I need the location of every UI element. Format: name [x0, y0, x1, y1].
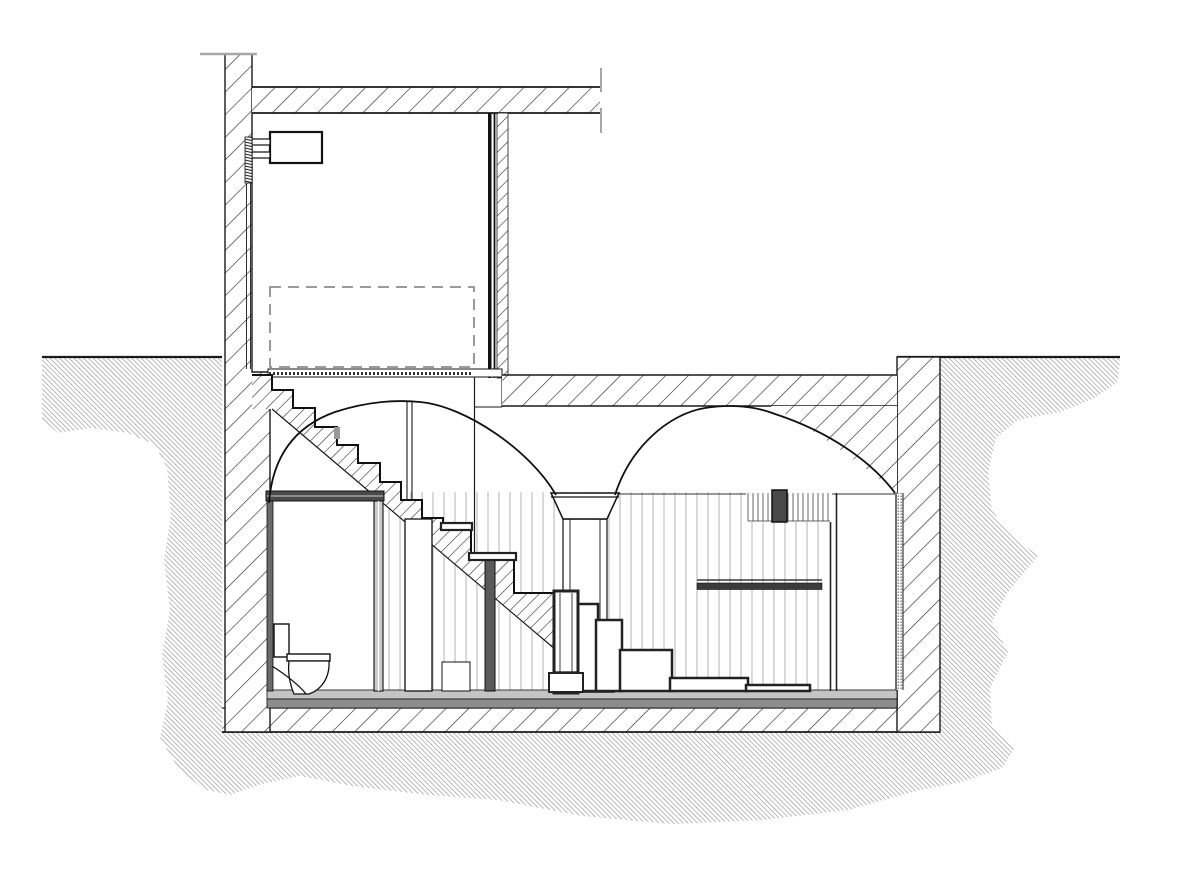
wall-mounted-cistern	[245, 132, 322, 369]
stair-step-box	[441, 523, 472, 530]
louver-band	[746, 490, 832, 522]
toilet	[272, 624, 330, 694]
ground-floor-slab-band	[502, 375, 897, 406]
right-wall-lining-strip	[896, 493, 903, 690]
toilet-cistern	[274, 624, 289, 657]
dashed-projected-outline	[270, 287, 474, 367]
floor-finish-strip	[268, 369, 502, 377]
stair-support-post	[485, 555, 495, 691]
ceiling-slab	[252, 68, 601, 133]
under-stair-door-panel	[405, 519, 432, 691]
basement-section-drawing	[0, 0, 1200, 890]
louver-end-block	[772, 490, 787, 522]
section-drawing-page	[0, 0, 1200, 890]
stair-lower-box-steps	[441, 523, 810, 691]
toilet-seat	[287, 654, 330, 661]
stair-step-box	[670, 678, 748, 691]
pipe-connection-coil	[245, 137, 252, 183]
toilet-bowl	[289, 661, 329, 694]
stair-step-box	[620, 650, 672, 691]
cistern-body	[270, 132, 322, 163]
glazed-partition-line	[831, 493, 837, 691]
stair-step-box	[596, 620, 622, 691]
foundation-slab	[222, 708, 940, 732]
bathroom-left-wall	[267, 501, 273, 691]
railing	[697, 580, 822, 590]
stair-step-box	[746, 685, 810, 691]
step-nub	[334, 427, 340, 439]
stair-newel-box	[549, 591, 583, 693]
stair-step-box	[469, 553, 516, 560]
cistern-bracket-bottom	[252, 152, 270, 158]
cistern-bracket-top	[252, 139, 270, 145]
stair-support-block	[442, 662, 470, 691]
interior-partition-wall	[475, 113, 509, 557]
